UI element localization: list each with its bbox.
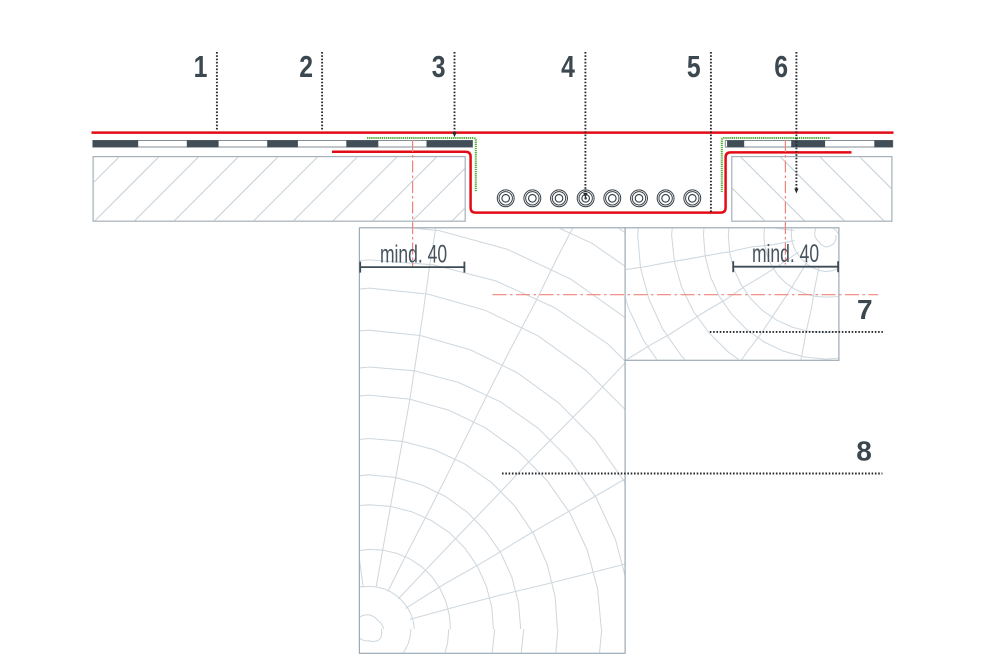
svg-text:7: 7	[857, 294, 873, 325]
svg-text:8: 8	[856, 436, 872, 467]
svg-text:5: 5	[687, 49, 701, 83]
svg-text:1: 1	[194, 49, 208, 83]
svg-text:mind. 40: mind. 40	[380, 239, 447, 268]
svg-text:3: 3	[432, 49, 446, 83]
svg-text:2: 2	[299, 49, 313, 83]
svg-text:4: 4	[561, 49, 575, 83]
svg-text:6: 6	[774, 49, 788, 83]
svg-text:mind. 40: mind. 40	[752, 239, 819, 268]
